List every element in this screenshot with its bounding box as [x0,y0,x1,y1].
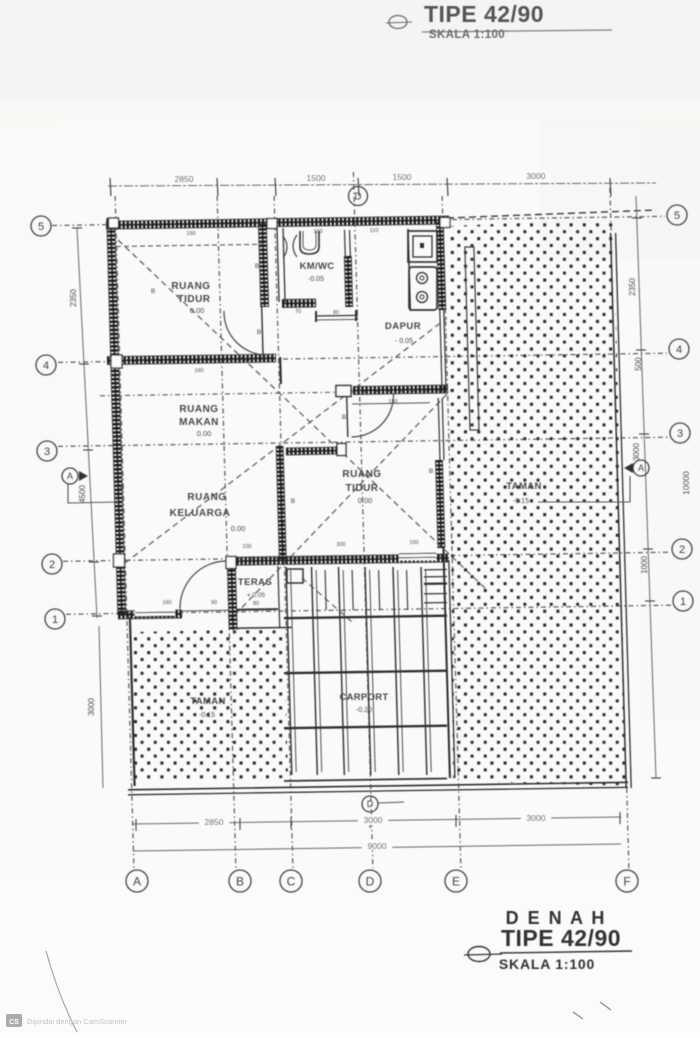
svg-text:RUANG: RUANG [171,281,210,292]
svg-text:1: 1 [680,596,686,608]
svg-text:2: 2 [49,559,55,571]
svg-text:CS: CS [9,1019,19,1026]
svg-text:A: A [67,471,73,481]
svg-text:10000: 10000 [681,471,691,495]
svg-text:B: B [120,485,124,492]
svg-text:0.00: 0.00 [197,429,212,438]
svg-text:TAMAN: TAMAN [506,481,542,492]
svg-text:TIPE 42/90: TIPE 42/90 [501,925,621,951]
svg-text:B: B [429,468,433,475]
svg-text:B: B [257,329,261,336]
svg-text:B: B [151,288,155,295]
svg-text:0.00: 0.00 [358,496,373,505]
svg-text:1500: 1500 [393,172,412,182]
svg-text:150: 150 [313,229,322,235]
svg-text:- 0.05: - 0.05 [395,338,413,345]
svg-text:TIPE 42/90: TIPE 42/90 [424,1,544,27]
svg-text:RUANG: RUANG [342,469,381,480]
svg-text:2350: 2350 [628,278,637,296]
svg-text:90: 90 [211,600,217,606]
svg-text:RUANG: RUANG [179,404,218,415]
svg-text:2850: 2850 [175,174,194,184]
svg-text:2350: 2350 [69,289,78,307]
svg-text:9000: 9000 [368,841,387,851]
svg-text:-0.15: -0.15 [513,498,529,505]
svg-text:SKALA 1:100: SKALA 1:100 [429,29,505,41]
svg-text:4: 4 [676,344,682,356]
svg-text:B: B [255,263,259,270]
svg-text:110: 110 [370,228,379,234]
svg-text:A: A [638,463,644,473]
svg-text:KM/WC: KM/WC [300,261,335,272]
svg-text:3000: 3000 [364,815,383,825]
svg-text:D: D [366,874,375,888]
svg-text:MAKAN: MAKAN [179,417,219,428]
svg-text:TAMAN: TAMAN [190,696,226,707]
svg-text:0.00: 0.00 [190,306,205,315]
svg-text:SKALA 1:100: SKALA 1:100 [499,956,595,972]
svg-text:70: 70 [295,309,301,315]
svg-text:80: 80 [333,310,339,316]
svg-text:5: 5 [38,221,44,233]
svg-text:1000: 1000 [640,556,649,574]
svg-text:160: 160 [162,600,171,606]
svg-text:0.00: 0.00 [231,524,246,533]
svg-text:1500: 1500 [307,173,326,183]
svg-text:RUANG: RUANG [187,492,226,503]
svg-text:E: E [452,874,460,888]
svg-text:TERAS: TERAS [238,577,272,588]
svg-text:3000: 3000 [527,813,546,823]
svg-text:160: 160 [194,368,203,374]
svg-text:KELUARGA: KELUARGA [170,508,231,519]
svg-text:-0.20: -0.20 [356,707,372,714]
svg-text:Dipindai dengan CamScanner: Dipindai dengan CamScanner [27,1017,128,1026]
svg-text:C: C [287,874,296,888]
svg-text:+ 0.05: + 0.05 [247,592,266,599]
svg-text:150: 150 [409,540,418,546]
svg-text:4: 4 [43,360,49,372]
svg-text:2850: 2850 [205,817,224,827]
svg-text:100: 100 [242,544,251,550]
svg-text:300: 300 [336,542,345,548]
svg-text:D: D [354,192,361,203]
svg-text:3000: 3000 [632,443,641,461]
svg-text:150: 150 [388,399,397,405]
svg-text:3000: 3000 [527,171,546,181]
svg-text:4500: 4500 [78,485,87,503]
svg-text:5: 5 [674,210,680,222]
svg-text:500: 500 [634,357,643,371]
svg-text:B: B [236,874,244,888]
svg-text:TIDUR: TIDUR [345,483,378,494]
svg-text:80: 80 [253,601,259,607]
svg-text:TIDUR: TIDUR [177,294,210,305]
svg-text:2: 2 [679,544,685,556]
svg-text:3000: 3000 [87,698,96,716]
svg-text:3: 3 [44,446,50,458]
svg-text:-0.15: -0.15 [199,712,215,719]
svg-text:F: F [623,874,630,888]
svg-text:-0.05: -0.05 [308,276,324,283]
svg-text:1: 1 [52,614,58,626]
svg-text:D: D [367,799,374,809]
svg-text:CARPORT: CARPORT [339,692,388,703]
svg-text:B: B [342,414,346,421]
svg-text:3: 3 [677,428,683,440]
svg-text:150: 150 [186,231,195,237]
svg-text:A: A [133,874,141,888]
svg-text:DAPUR: DAPUR [385,321,421,332]
svg-text:B: B [291,498,295,505]
